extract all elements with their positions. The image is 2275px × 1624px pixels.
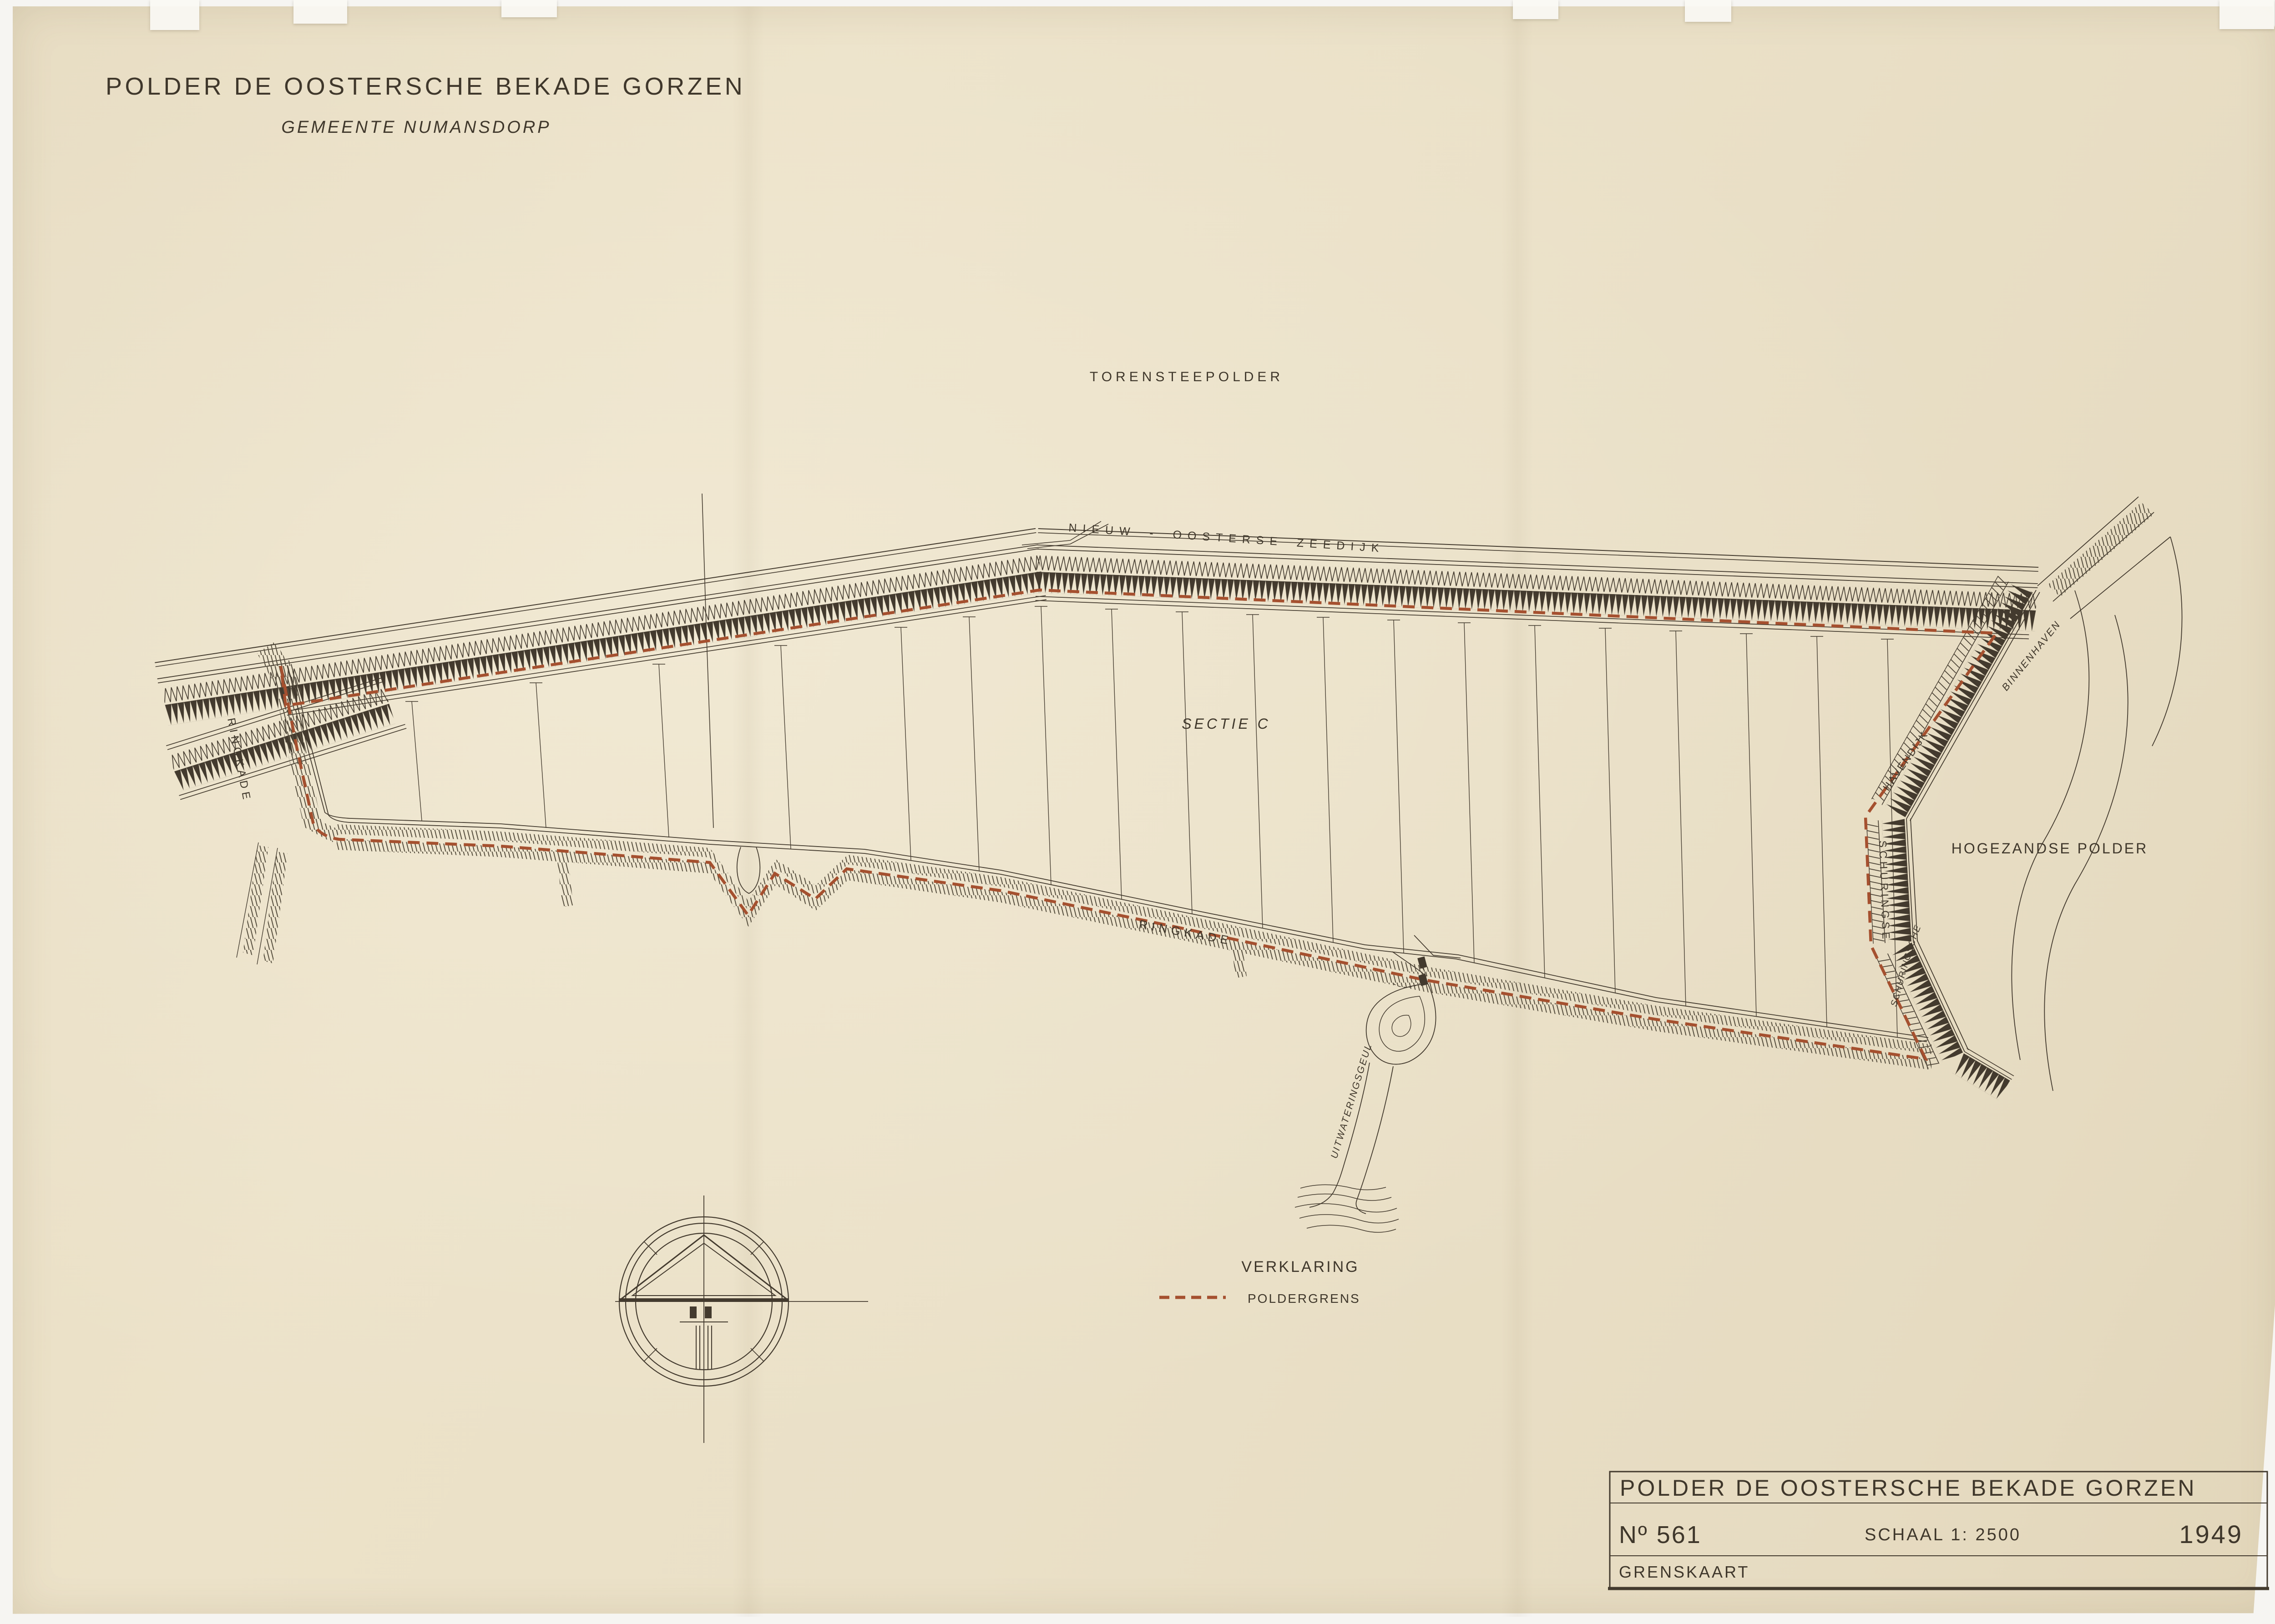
label-hogezandse-polder: HOGEZANDSE POLDER — [1951, 840, 2149, 857]
title-block-title: POLDER DE OOSTERSCHE BEKADE GORZEN — [1620, 1475, 2196, 1501]
title-block-type: GRENSKAART — [1619, 1563, 1749, 1581]
title-block-year: 1949 — [2179, 1520, 2243, 1548]
page-title: POLDER DE OOSTERSCHE BEKADE GORZEN — [106, 73, 745, 100]
title-block: POLDER DE OOSTERSCHE BEKADE GORZEN Nº 56… — [1608, 1472, 2269, 1589]
scanned-map-sheet-stage: TORENSTEEPOLDER SECTIE C HOGEZANDSE POLD… — [0, 0, 2275, 1624]
legend-title: VERKLARING — [1241, 1258, 1359, 1276]
title-block-number: Nº 561 — [1619, 1521, 1702, 1548]
compass-rose — [615, 1195, 868, 1443]
label-sectie-c: SECTIE C — [1182, 716, 1271, 732]
legend: VERKLARING POLDERGRENS — [1159, 1258, 1360, 1306]
map-drawing: TORENSTEEPOLDER SECTIE C HOGEZANDSE POLD… — [0, 0, 2275, 1624]
label-zeedijk: NIEUW - OOSTERSE ZEEDIJK — [1068, 521, 1385, 555]
ringkade-boundary-kade — [237, 661, 1931, 1070]
label-uitwateringsgeul: UITWATERINGSGEUL — [1329, 1042, 1374, 1160]
title-block-scale: SCHAAL 1: 2500 — [1865, 1525, 2021, 1544]
map-header: POLDER DE OOSTERSCHE BEKADE GORZEN GEMEE… — [106, 73, 745, 137]
uitwateringsgeul-creek — [1295, 956, 1436, 1232]
legend-poldergrens-label: POLDERGRENS — [1248, 1291, 1360, 1306]
parcel-lines — [405, 606, 1897, 1037]
label-torensteepolder: TORENSTEEPOLDER — [1090, 369, 1284, 384]
zeedijk-north-dike — [155, 494, 2038, 828]
shore-wave-lines — [1295, 1185, 1399, 1232]
page-subtitle: GEMEENTE NUMANSDORP — [281, 118, 551, 137]
